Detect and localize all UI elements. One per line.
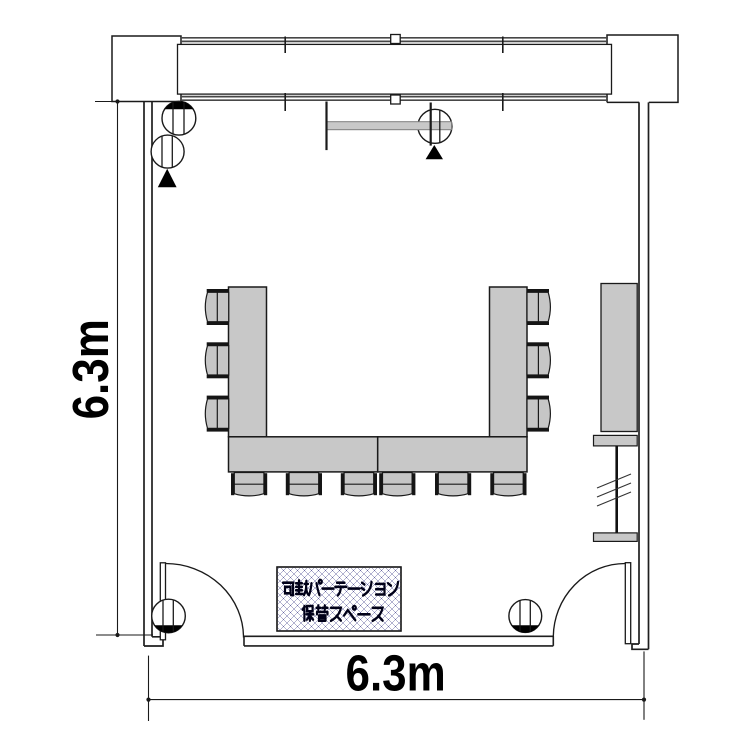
svg-text:6.3m: 6.3m bbox=[345, 645, 445, 702]
svg-text:6.3m: 6.3m bbox=[63, 319, 120, 419]
